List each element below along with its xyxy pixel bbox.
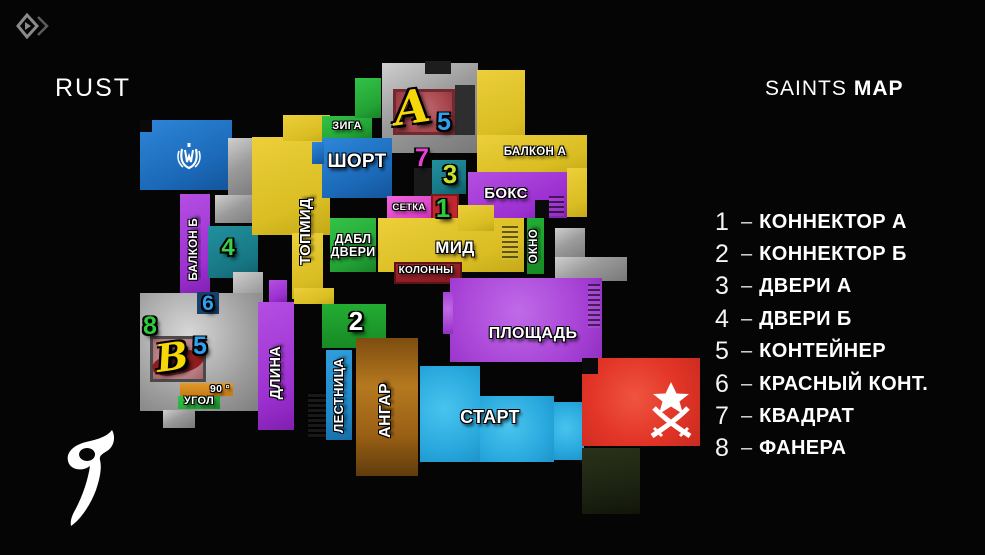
legend-dash: – — [741, 308, 752, 331]
label-balkon-a: БАЛКОН А — [490, 144, 580, 162]
label-ploshchad: ПЛОЩАДЬ — [478, 324, 588, 344]
legend-dash: – — [741, 437, 752, 460]
legend-name: КОННЕКТОР Б — [759, 243, 907, 266]
legend-name: КРАСНЫЙ КОНТ. — [759, 373, 928, 396]
label-short: ШОРТ — [322, 148, 392, 176]
stairs-texture — [502, 226, 518, 260]
legend-name: ДВЕРИ А — [759, 275, 852, 298]
area-t-spawn-yard — [582, 448, 640, 514]
brand-bold: MAP — [854, 77, 904, 100]
legend-dash: – — [741, 275, 752, 298]
area-start-arm — [554, 402, 584, 460]
legend-dash: – — [741, 340, 752, 363]
label-lestnitsa: ЛЕСТНИЦА — [324, 352, 354, 438]
legend-name: ДВЕРИ Б — [759, 308, 851, 331]
legend-item: 3–ДВЕРИ А — [710, 271, 928, 303]
marker-kvadrat: 7 — [410, 143, 434, 173]
legend-number: 5 — [710, 337, 734, 366]
label-mid: МИД — [425, 236, 485, 260]
legend-item: 4–ДВЕРИ Б — [710, 303, 928, 335]
area-ploshchad-bump — [443, 292, 453, 334]
legend-item: 8–ФАНЕРА — [710, 433, 928, 465]
screenshot-root: RUST SAINTSMAP 1–КОННЕКТОР А 2–КОННЕКТОР… — [0, 0, 985, 555]
corner-diamond-logo-icon — [16, 12, 50, 42]
label-boks: БОКС — [470, 182, 542, 206]
map-notch — [140, 120, 152, 132]
brand-light: SAINTS — [765, 77, 847, 100]
legend-number: 2 — [710, 240, 734, 269]
label-ziga: ЗИГА — [322, 116, 372, 138]
marker-dveri-b: 4 — [216, 232, 240, 264]
legend-item: 1–КОННЕКТОР А — [710, 206, 928, 238]
legend-dash: – — [741, 211, 752, 234]
legend-item: 2–КОННЕКТОР Б — [710, 238, 928, 270]
label-dabl-dveri: ДАБЛ ДВЕРИ — [324, 226, 382, 266]
legend-name: КОННЕКТОР А — [759, 211, 907, 234]
legend-name: КОНТЕЙНЕР — [759, 340, 886, 363]
legend-number: 7 — [710, 402, 734, 431]
stairs-texture — [549, 196, 564, 216]
legend-number: 4 — [710, 305, 734, 334]
legend-number: 1 — [710, 208, 734, 237]
area-a-site-shadow — [455, 85, 475, 135]
marker-konteyner-a: 5 — [432, 106, 456, 138]
label-ugol: УГОЛ — [176, 394, 222, 410]
legend-name: КВАДРАТ — [759, 405, 854, 428]
marker-konnektor-b: 2 — [344, 304, 368, 338]
legend-number: 6 — [710, 370, 734, 399]
map-notch — [582, 358, 598, 374]
label-90-degrees: 90 ° — [180, 382, 230, 396]
stairs-texture — [588, 284, 600, 328]
brand-title: SAINTSMAP — [765, 77, 904, 101]
legend-item: 6–КРАСНЫЙ КОНТ. — [710, 368, 928, 400]
ct-emblem-icon — [174, 141, 204, 173]
label-setka: СЕТКА — [387, 199, 431, 217]
marker-dveri-a: 3 — [438, 158, 462, 190]
site-a-graffiti: A — [390, 78, 433, 136]
legend-item: 5–КОНТЕЙНЕР — [710, 336, 928, 368]
area-ploshchad — [450, 278, 602, 362]
label-okno: ОКНО — [523, 216, 547, 276]
marker-konteyner-b: 5 — [188, 330, 212, 362]
label-dlina: ДЛИНА — [262, 338, 292, 408]
area-b-site-tab — [163, 410, 195, 428]
label-start: СТАРТ — [440, 404, 540, 430]
area-dlina-tab — [269, 280, 287, 302]
legend-number: 8 — [710, 434, 734, 463]
area-topmid-foot — [294, 288, 334, 304]
label-balkon-b: БАЛКОН Б — [180, 206, 210, 292]
legend-item: 7–КВАДРАТ — [710, 400, 928, 432]
label-angar: АНГАР — [366, 370, 406, 450]
legend-dash: – — [741, 405, 752, 428]
marker-konnektor-a: 1 — [429, 192, 457, 224]
legend-number: 3 — [710, 272, 734, 301]
area-mid-arm — [458, 205, 494, 231]
site-b-graffiti: B — [153, 332, 191, 381]
legend-dash: – — [741, 373, 752, 396]
label-topmid: ТОПМИД — [290, 186, 322, 278]
area-balkon-a-stairs — [567, 168, 587, 217]
area-ziga-upper — [355, 78, 381, 118]
map-title: RUST — [55, 74, 131, 103]
legend-name: ФАНЕРА — [759, 437, 846, 460]
label-kolonny: КОЛОННЫ — [394, 263, 458, 279]
legend: 1–КОННЕКТОР А 2–КОННЕКТОР Б 3–ДВЕРИ А 4–… — [710, 206, 928, 465]
t-emblem-icon — [644, 380, 698, 438]
saints-s-logo-icon — [50, 428, 120, 533]
area-a-site-dark-block — [425, 61, 451, 74]
marker-krasny-kont: 6 — [196, 291, 220, 317]
legend-dash: – — [741, 243, 752, 266]
